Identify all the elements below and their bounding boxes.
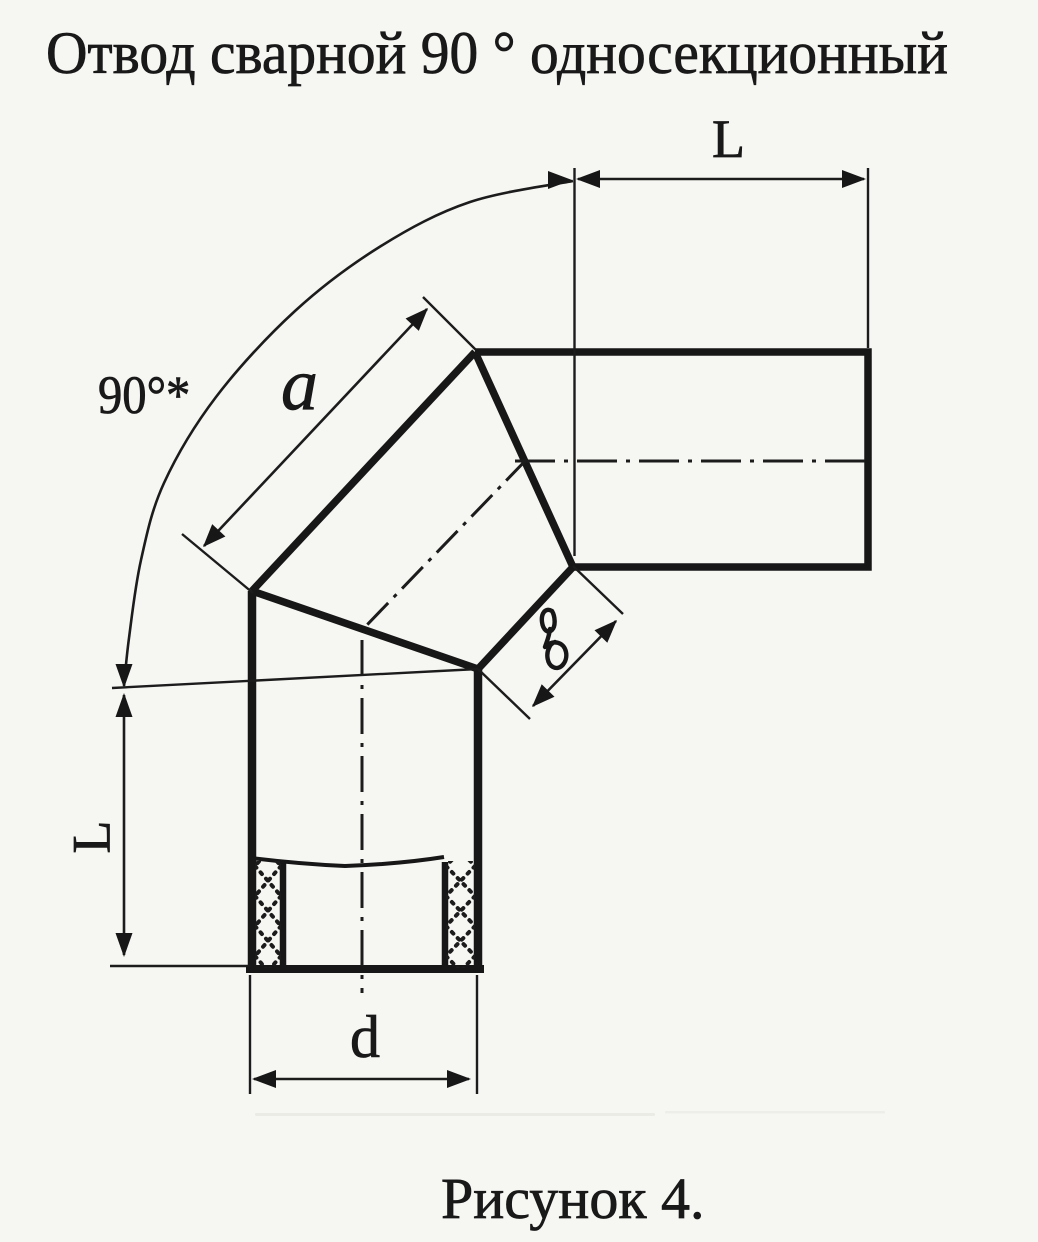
svg-text:d: d xyxy=(350,1004,380,1070)
svg-text:Отвод сварной 90 ° односекцион: Отвод сварной 90 ° односекционный xyxy=(46,19,948,87)
svg-text:L: L xyxy=(712,109,745,169)
svg-text:90°*: 90°* xyxy=(98,366,190,426)
svg-text:a: a xyxy=(281,344,318,426)
svg-text:L: L xyxy=(61,821,121,854)
svg-text:Рисунок 4.: Рисунок 4. xyxy=(441,1166,705,1231)
